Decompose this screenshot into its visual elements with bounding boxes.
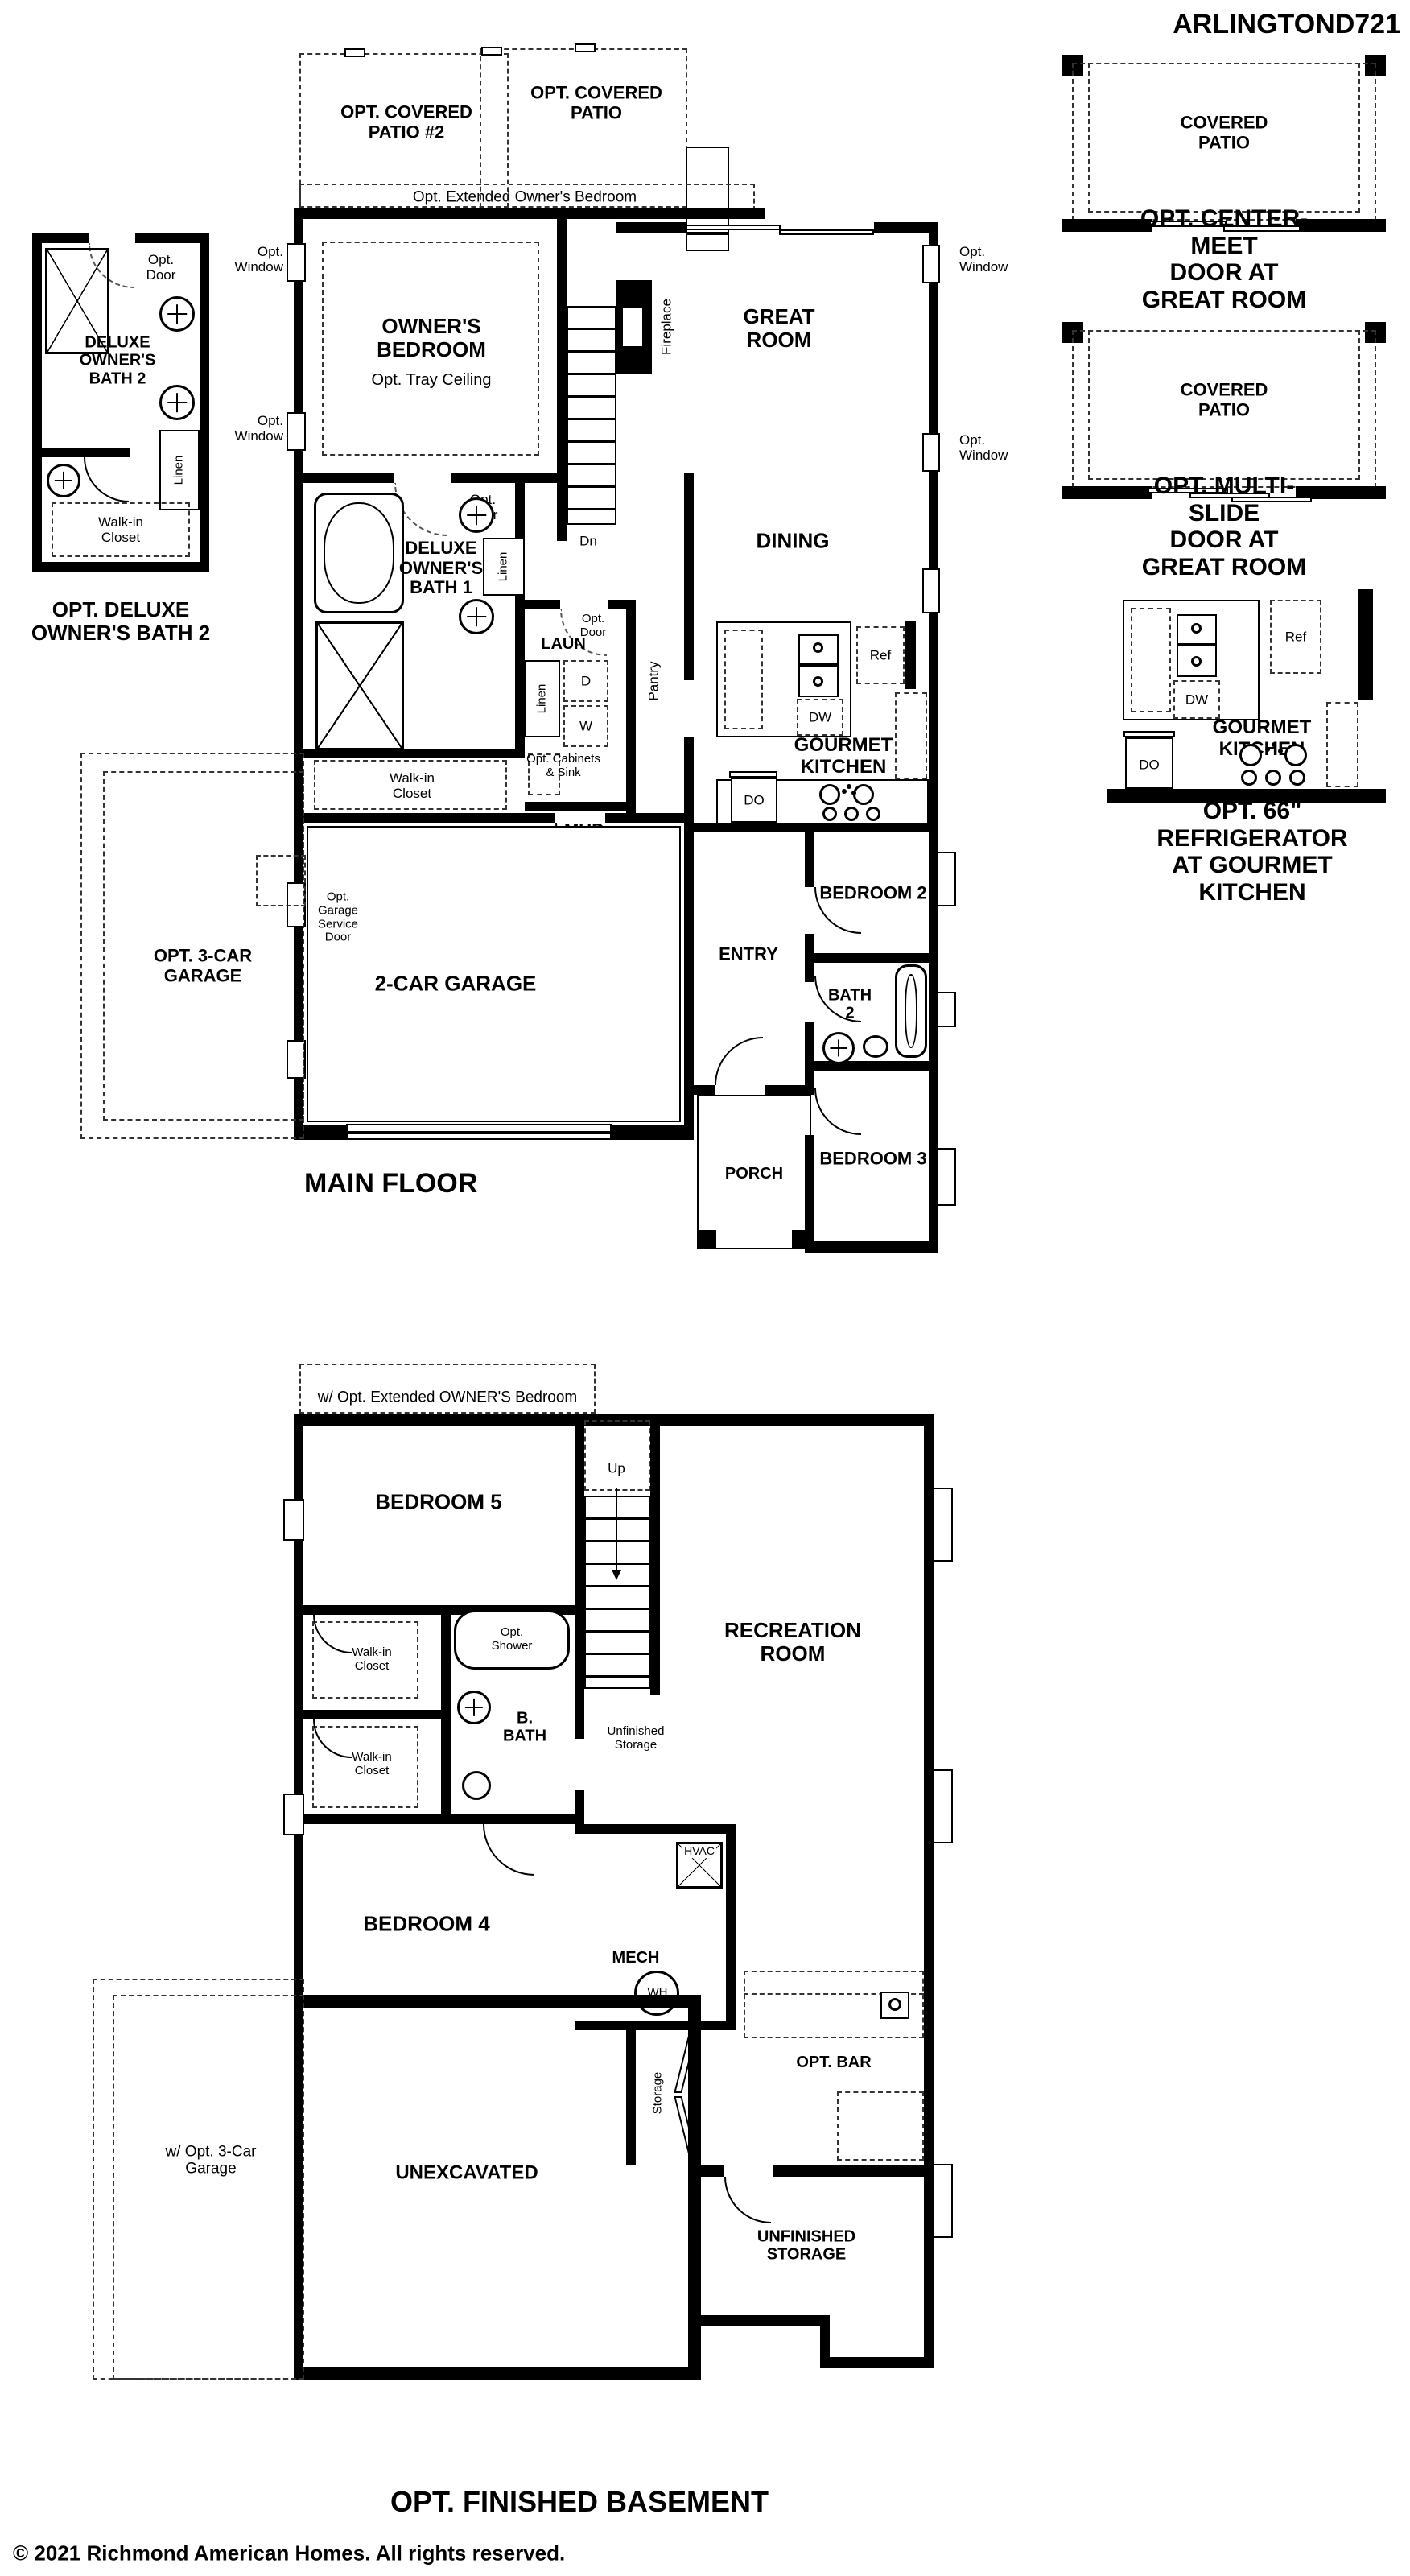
window-icon bbox=[932, 1488, 953, 1562]
washer-label: W bbox=[579, 718, 592, 733]
linen-label: Linen bbox=[536, 684, 550, 714]
room-label-b-bath: B. BATH bbox=[503, 1710, 546, 1746]
window-icon bbox=[922, 433, 940, 472]
opt-3-car-outline-inner bbox=[113, 1995, 304, 2380]
page-title: ARLINGTOND721 bbox=[1173, 9, 1400, 39]
wall bbox=[805, 1241, 938, 1253]
wall bbox=[575, 1414, 584, 1615]
walk-in-closet-label: Walk-in Closet bbox=[352, 1646, 391, 1674]
counter-outline bbox=[895, 692, 927, 779]
burner-icon bbox=[1265, 770, 1281, 786]
wall bbox=[820, 2357, 934, 2368]
pantry-label: Pantry bbox=[645, 661, 661, 700]
room-label-deluxe-bath-1: DELUXE OWNER'S BATH 1 bbox=[399, 539, 483, 598]
room-label-covered-patio: COVERED PATIO bbox=[1181, 380, 1268, 419]
dryer-label: D bbox=[581, 673, 591, 688]
stairs-arrow-line bbox=[616, 1488, 617, 1571]
oven-lid-icon bbox=[729, 771, 777, 778]
wall bbox=[303, 1995, 688, 2008]
fireplace-notch bbox=[623, 308, 642, 346]
label-opt-extended-bedroom: Opt. Extended Owner's Bedroom bbox=[413, 188, 637, 205]
room-label-bedroom-2: BEDROOM 2 bbox=[819, 884, 926, 904]
patio-post bbox=[344, 48, 365, 57]
dishwasher-label: DW bbox=[1185, 691, 1208, 707]
room-label-recreation-room: RECREATION ROOM bbox=[724, 1619, 861, 1666]
wall bbox=[616, 222, 687, 233]
wall bbox=[294, 813, 694, 823]
wall bbox=[294, 2367, 701, 2380]
garage-door-icon bbox=[346, 1124, 612, 1133]
wall bbox=[1358, 589, 1373, 700]
room-label-bedroom-3: BEDROOM 3 bbox=[819, 1150, 926, 1170]
window-icon bbox=[283, 1794, 304, 1835]
door-opening bbox=[555, 813, 605, 823]
center-meet-door-panel-icon bbox=[686, 225, 781, 230]
room-label-entry: ENTRY bbox=[719, 945, 778, 965]
window-icon bbox=[932, 2164, 953, 2238]
wall bbox=[575, 2021, 736, 2030]
wall bbox=[929, 222, 938, 1253]
burner-icon bbox=[822, 807, 837, 821]
island-counter-outline bbox=[724, 630, 763, 729]
storage-label: Storage bbox=[652, 2072, 666, 2115]
room-label-2-car-garage: 2-CAR GARAGE bbox=[375, 972, 537, 995]
wall bbox=[650, 1414, 660, 1695]
sink-drain-icon bbox=[888, 1998, 901, 2011]
label-opt-cabinets-sink: Opt. Cabinets & Sink bbox=[526, 753, 600, 780]
window-icon bbox=[932, 1769, 953, 1843]
refrigerator-label: Ref bbox=[1285, 629, 1306, 644]
wall bbox=[303, 1814, 584, 1824]
wall bbox=[684, 473, 694, 823]
label-opt-covered-patio-2: OPT. COVERED PATIO #2 bbox=[340, 102, 472, 142]
window-icon bbox=[287, 243, 306, 282]
burner-dot-icon bbox=[1265, 747, 1270, 752]
door-arc-icon bbox=[724, 2177, 771, 2223]
inset-title: OPT. DELUXE OWNER'S BATH 2 bbox=[31, 598, 210, 645]
window-icon bbox=[283, 1499, 304, 1541]
burner-dot-icon bbox=[847, 784, 851, 789]
label-opt-tray-ceiling: Opt. Tray Ceiling bbox=[372, 371, 492, 389]
door-opening bbox=[575, 1739, 584, 1790]
wall bbox=[525, 802, 626, 811]
room-label-laun: LAUN bbox=[541, 635, 586, 653]
center-meet-door-panel-icon bbox=[779, 229, 874, 235]
room-label-unexcavated: UNEXCAVATED bbox=[395, 2163, 538, 2185]
wall bbox=[805, 1022, 814, 1095]
wall bbox=[626, 600, 636, 813]
option-caption-center-meet: OPT. CENTER-MEET DOOR AT GREAT ROOM bbox=[1132, 205, 1317, 313]
patio-post bbox=[481, 47, 502, 56]
wall bbox=[200, 233, 209, 572]
opt-window-label: Opt. Window bbox=[235, 413, 283, 444]
burner-icon bbox=[1241, 770, 1257, 786]
burner-icon bbox=[819, 784, 840, 805]
walk-in-closet-label: Walk-in Closet bbox=[390, 770, 435, 801]
label-unfinished-storage-small: Unfinished Storage bbox=[608, 1725, 665, 1752]
burner-dot-icon bbox=[1278, 749, 1283, 753]
sink-icon bbox=[863, 1035, 888, 1058]
room-label-great-room: GREAT ROOM bbox=[743, 305, 814, 352]
toilet-icon bbox=[159, 385, 195, 420]
wall bbox=[32, 448, 130, 457]
wall bbox=[303, 1710, 451, 1719]
room-label-bath-2: BATH 2 bbox=[828, 987, 872, 1023]
room-label-mech: MECH bbox=[612, 1949, 660, 1967]
double-oven-label: DO bbox=[1139, 757, 1160, 772]
opt-window-label: Opt. Window bbox=[235, 244, 283, 275]
walk-in-closet-label: Walk-in Closet bbox=[352, 1751, 391, 1778]
window-icon bbox=[287, 412, 306, 451]
wall bbox=[684, 823, 694, 1140]
wall bbox=[303, 473, 394, 483]
fireplace-label: Fireplace bbox=[658, 299, 674, 355]
wall bbox=[575, 1824, 736, 1834]
tub-icon bbox=[314, 493, 404, 613]
opt-door-label: Opt. Door bbox=[146, 252, 176, 283]
label-garage-service-door: Opt. Garage Service Door bbox=[318, 890, 358, 944]
stairs-icon bbox=[584, 1496, 650, 1689]
room-label-covered-patio: COVERED PATIO bbox=[1181, 113, 1268, 152]
door-arc-icon bbox=[483, 1824, 534, 1876]
door-arc-icon bbox=[715, 1037, 763, 1085]
wall bbox=[303, 749, 515, 758]
label-opt-covered-patio: OPT. COVERED PATIO bbox=[530, 83, 662, 122]
burner-dot-icon bbox=[851, 791, 856, 795]
label-opt-3-car-note: w/ Opt. 3-Car Garage bbox=[166, 2144, 257, 2178]
door-opening bbox=[715, 1085, 765, 1095]
room-label-bedroom-5: BEDROOM 5 bbox=[375, 1490, 501, 1513]
wall bbox=[525, 600, 560, 609]
burner-dot-icon bbox=[1272, 742, 1276, 747]
wall bbox=[626, 2030, 636, 2165]
porch-post bbox=[697, 1230, 716, 1249]
toilet-icon bbox=[459, 497, 494, 533]
opt-window-label: Opt. Window bbox=[959, 244, 1008, 275]
toilet-icon bbox=[159, 296, 195, 332]
linen-label: Linen bbox=[173, 456, 187, 485]
chimney-box bbox=[686, 233, 729, 251]
stairs-up-label: Up bbox=[608, 1460, 625, 1476]
copyright-text: © 2021 Richmond American Homes. All righ… bbox=[13, 2541, 565, 2565]
double-oven-label: DO bbox=[744, 792, 765, 807]
window-icon bbox=[937, 992, 956, 1027]
opt-bar-counter-outline bbox=[837, 2091, 924, 2161]
wall bbox=[726, 1824, 736, 2030]
wall bbox=[557, 219, 567, 541]
oven-lid-icon bbox=[1123, 731, 1175, 737]
burner-icon bbox=[1284, 744, 1307, 766]
burner-icon bbox=[844, 807, 859, 821]
room-label-owners-bedroom: OWNER'S BEDROOM bbox=[377, 315, 486, 361]
burner-icon bbox=[866, 807, 880, 821]
label-opt-shower: Opt. Shower bbox=[492, 1626, 533, 1653]
room-label-bedroom-4: BEDROOM 4 bbox=[363, 1912, 489, 1935]
burner-icon bbox=[1289, 770, 1305, 786]
refrigerator-label: Ref bbox=[870, 647, 891, 663]
room-label-gourmet-kitchen: GOURMET KITCHEN bbox=[794, 735, 893, 778]
label-opt-bar: OPT. BAR bbox=[796, 2054, 871, 2071]
sink-drain-icon bbox=[1191, 656, 1202, 667]
patio-post bbox=[575, 43, 596, 52]
opt-window-label: Opt. Window bbox=[959, 432, 1008, 463]
sink-icon bbox=[462, 1771, 491, 1800]
room-label-dining: DINING bbox=[757, 529, 830, 552]
label-opt-3-car-garage: OPT. 3-CAR GARAGE bbox=[154, 946, 252, 985]
room-label-porch: PORCH bbox=[725, 1165, 783, 1183]
walk-in-closet-label: Walk-in Closet bbox=[98, 514, 143, 545]
burner-icon bbox=[853, 784, 874, 805]
garage-door-icon bbox=[346, 1133, 612, 1140]
burner-icon bbox=[1239, 744, 1262, 766]
stairs-icon bbox=[567, 306, 616, 525]
window-icon bbox=[922, 568, 940, 613]
label-extended-bedroom-note: w/ Opt. Extended OWNER'S Bedroom bbox=[318, 1389, 578, 1406]
wall bbox=[805, 823, 814, 887]
door-opening bbox=[724, 2165, 773, 2177]
option-caption-refrigerator: OPT. 66" REFRIGERATOR AT GOURMET KITCHEN bbox=[1156, 798, 1347, 906]
wall bbox=[575, 1605, 584, 1824]
wall bbox=[294, 208, 765, 219]
stairs-arrow-icon bbox=[612, 1570, 621, 1580]
main-floor-title: MAIN FLOOR bbox=[304, 1168, 477, 1199]
toilet-icon bbox=[47, 464, 80, 497]
sink-drain-icon bbox=[813, 642, 823, 653]
option-caption-multi-slide: OPT. MULTI-SLIDE DOOR AT GREAT ROOM bbox=[1132, 473, 1317, 580]
wall bbox=[32, 233, 42, 572]
hvac-label: HVAC bbox=[682, 1845, 716, 1858]
window-icon bbox=[937, 852, 956, 906]
shower-icon bbox=[315, 621, 404, 750]
toilet-icon bbox=[459, 599, 494, 634]
toilet-icon bbox=[457, 1690, 491, 1724]
wall bbox=[805, 1135, 814, 1253]
room-label-deluxe-bath-2: DELUXE OWNER'S BATH 2 bbox=[80, 333, 156, 387]
tub-icon bbox=[895, 964, 927, 1058]
basement-title: OPT. FINISHED BASEMENT bbox=[390, 2486, 769, 2518]
window-icon bbox=[937, 1148, 956, 1206]
toilet-icon bbox=[822, 1032, 855, 1064]
door-arc-icon bbox=[814, 1088, 861, 1135]
wall bbox=[805, 934, 814, 982]
wall bbox=[515, 473, 525, 758]
dishwasher-label: DW bbox=[809, 709, 831, 724]
door-arc-icon bbox=[84, 457, 129, 502]
burner-dot-icon bbox=[842, 789, 847, 794]
stairs-dn-label: Dn bbox=[579, 533, 597, 548]
sink-drain-icon bbox=[1191, 623, 1202, 634]
door-opening bbox=[89, 233, 135, 243]
wall bbox=[814, 953, 929, 963]
wall bbox=[905, 621, 916, 689]
stair-landing-outline bbox=[584, 1420, 650, 1491]
linen-label: Linen bbox=[497, 552, 511, 582]
floorplan-sheet: { "plan_title": "ARLINGTOND721", "shared… bbox=[0, 0, 1410, 2576]
sink-drain-icon bbox=[813, 676, 823, 687]
wall bbox=[451, 473, 557, 483]
room-label-unfinished-storage: UNFINISHED STORAGE bbox=[757, 2228, 855, 2264]
wall bbox=[32, 562, 209, 572]
wall bbox=[688, 2315, 830, 2326]
island-counter-outline bbox=[1131, 608, 1171, 712]
window-icon bbox=[922, 245, 940, 283]
door-opening bbox=[684, 680, 694, 737]
wall bbox=[924, 2323, 934, 2368]
counter-outline bbox=[1326, 702, 1358, 787]
